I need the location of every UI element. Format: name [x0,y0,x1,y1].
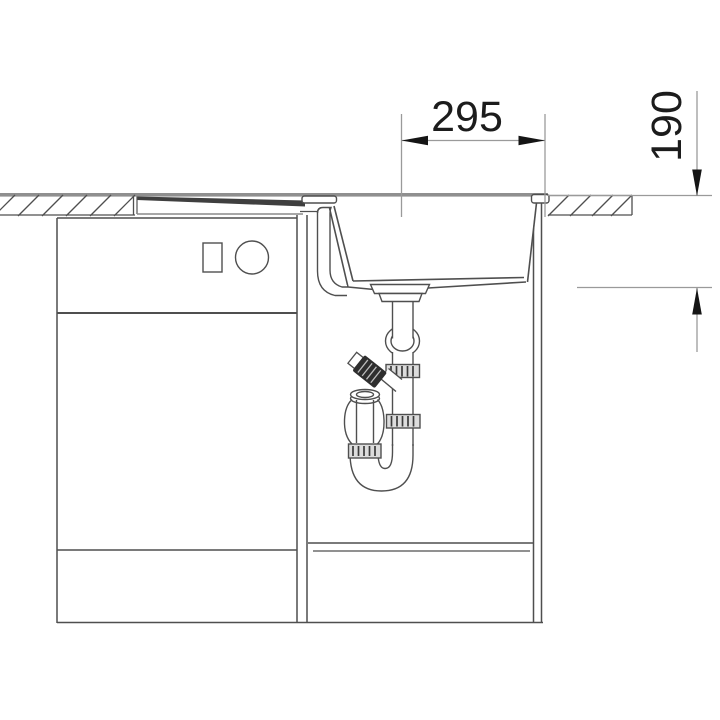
bowl-interior [334,203,536,283]
countertop-right-hatch [545,195,632,216]
trap-outlet-column [344,390,384,459]
sink-rim-right [532,195,550,204]
arrowhead-up [692,288,702,315]
drainboard [137,197,305,215]
arrowhead-right [519,136,546,146]
dimension-width-label: 295 [431,93,503,141]
sink-bowl [300,195,549,297]
sink-installation-drawing: 295 190 [0,0,720,720]
bowl-bottom-shell-left [348,287,374,290]
control-panel-button [203,243,222,272]
sink-rim-left [302,196,337,203]
tailpipe [393,301,414,339]
countertop-left-hatch [0,195,135,216]
outlet-bulge-right [378,400,385,445]
countertop-surface-line [0,193,548,197]
drawing-canvas: 295 190 [0,0,720,720]
siphon-assembly [344,285,429,492]
arrowhead-left [402,136,429,146]
outlet-bulge-left [344,400,352,445]
control-panel-knob [236,241,269,274]
arrowhead-down [692,170,702,197]
drain-flange [371,285,430,302]
bowl-bottom-shell-right [428,282,526,288]
knurled-nut-middle [387,415,421,429]
left-cabinet [57,218,297,623]
dimension-depth-label: 190 [643,90,691,162]
